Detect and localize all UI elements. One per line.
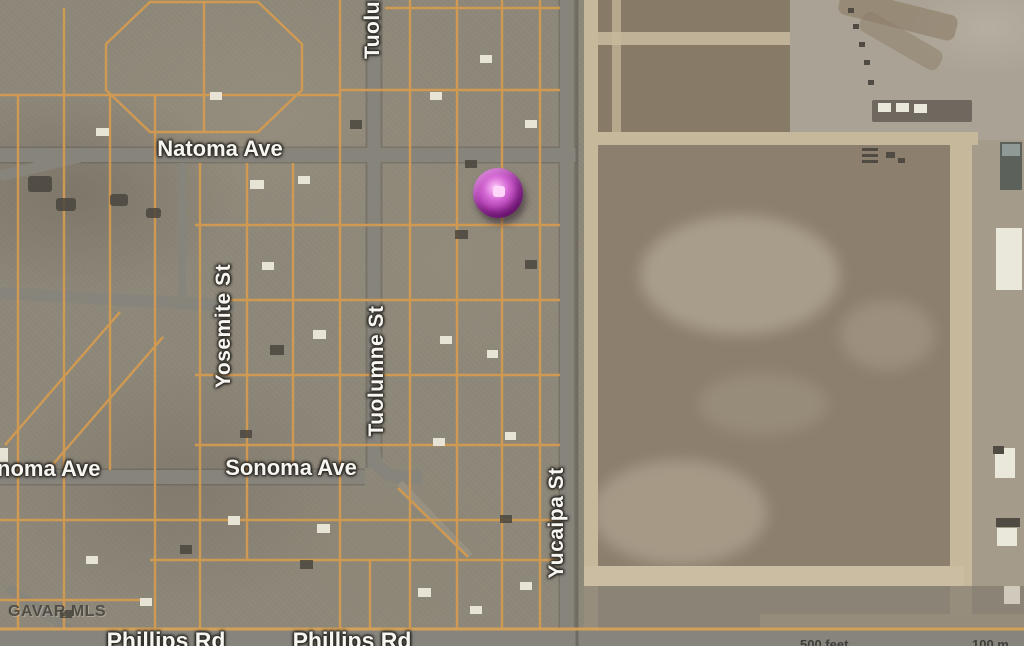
satellite-map[interactable]: Tuolu Natoma Ave Yosemite St Tuolumne St… — [0, 0, 1024, 646]
street-label-sonoma-ave-partial: noma Ave — [0, 456, 101, 482]
street-label-tuolumne-partial: Tuolu — [361, 1, 385, 59]
street-label-natoma-ave: Natoma Ave — [157, 136, 283, 162]
street-label-phillips-rd-west: Phillips Rd — [107, 628, 226, 646]
scale-label-meters: 100 m — [972, 637, 1009, 646]
street-label-yosemite-st: Yosemite St — [212, 264, 236, 388]
street-label-phillips-rd-east: Phillips Rd — [293, 628, 412, 646]
purple-pin-marker[interactable] — [473, 168, 523, 218]
street-label-yucaipa-st: Yucaipa St — [545, 467, 569, 578]
street-label-tuolumne-st: Tuolumne St — [365, 305, 389, 436]
street-label-sonoma-ave: Sonoma Ave — [225, 455, 357, 481]
road-grid-layer — [0, 0, 1024, 646]
pin-highlight — [493, 186, 505, 197]
mls-watermark: GAVAR MLS — [8, 603, 106, 621]
scale-label-feet: 500 feet — [800, 637, 848, 646]
